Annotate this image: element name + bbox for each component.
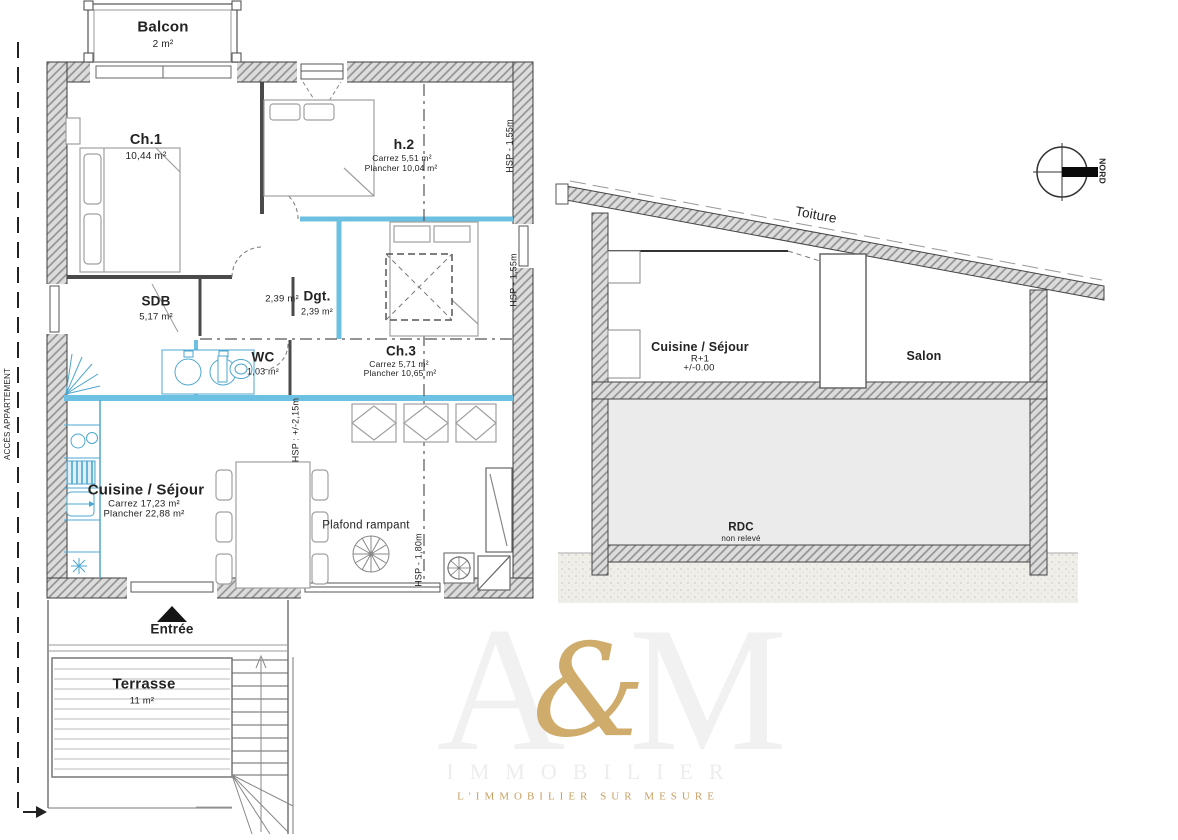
hsp-label-sejour: HSP : +/-2,15m [292,398,301,462]
floor-plan-drawing [18,1,534,834]
architectural-drawing [0,0,1178,840]
room-plancher-h2: Plancher 10,04 m² [365,164,438,173]
section-drawing [556,181,1104,603]
entrance-arrow-icon [157,606,187,622]
section-label-salon: Salon [906,350,941,363]
room-label-cuisine-sejour: Cuisine / Séjour [88,483,205,498]
section-elevation: +/-0.00 [683,363,714,373]
access-label: ACCÈS APPARTEMENT [4,368,12,460]
room-label-sdb: SDB [141,294,170,308]
room-label-h2: h.2 [394,137,415,151]
compass-north-label: NORD [1098,158,1107,184]
access-path [18,42,36,812]
room-label-ch3: Ch.3 [386,344,416,358]
room-area-dgt: 2,39 m² [301,308,333,317]
room-label-ch1: Ch.1 [130,133,162,148]
plant-icon [444,553,474,583]
room-plancher-cuisine-sejour: Plancher 22,88 m² [103,509,184,519]
section-label-cuisine-sejour: Cuisine / Séjour [651,341,749,354]
room-label-dgt: Dgt. [303,289,330,303]
hsp-label-ch3: HSP - 1,55m [510,253,519,307]
room-label-terrasse: Terrasse [112,677,175,692]
access-path-arrowhead [36,806,47,818]
room-plancher-ch3: Plancher 10,65 m² [364,369,437,378]
floorplan-document: A M & IMMOBILIER L'IMMOBILIER SUR MESURE [0,0,1178,840]
section-label-rdc: RDC [728,522,754,534]
note-plafond-rampant: Plafond rampant [322,520,409,532]
north-compass-icon [1033,143,1098,201]
room-label-balcon: Balcon [137,20,188,35]
room-carrez-h2: Carrez 5,51 m² [372,154,431,163]
room-label-wc: WC [252,350,275,364]
room-area-ch1: 10,44 m² [125,152,166,162]
room-area-balcon: 2 m² [153,40,174,50]
room-area-sdb: 5,17 m² [139,312,173,322]
entrance-label: Entrée [150,622,193,636]
hsp-label-bas: HSP - 1,80m [415,533,424,587]
hsp-label-h2: HSP - 1,55m [506,119,515,173]
room-area-wc: 1,03 m² [247,368,279,377]
room-area-terrasse: 11 m² [130,696,155,706]
snowflake-icon [71,558,87,574]
section-note-rdc: non relevé [721,535,760,543]
spiral-staircase-icon [353,536,389,572]
room-area-dgt-left: 2,39 m² [265,294,299,304]
